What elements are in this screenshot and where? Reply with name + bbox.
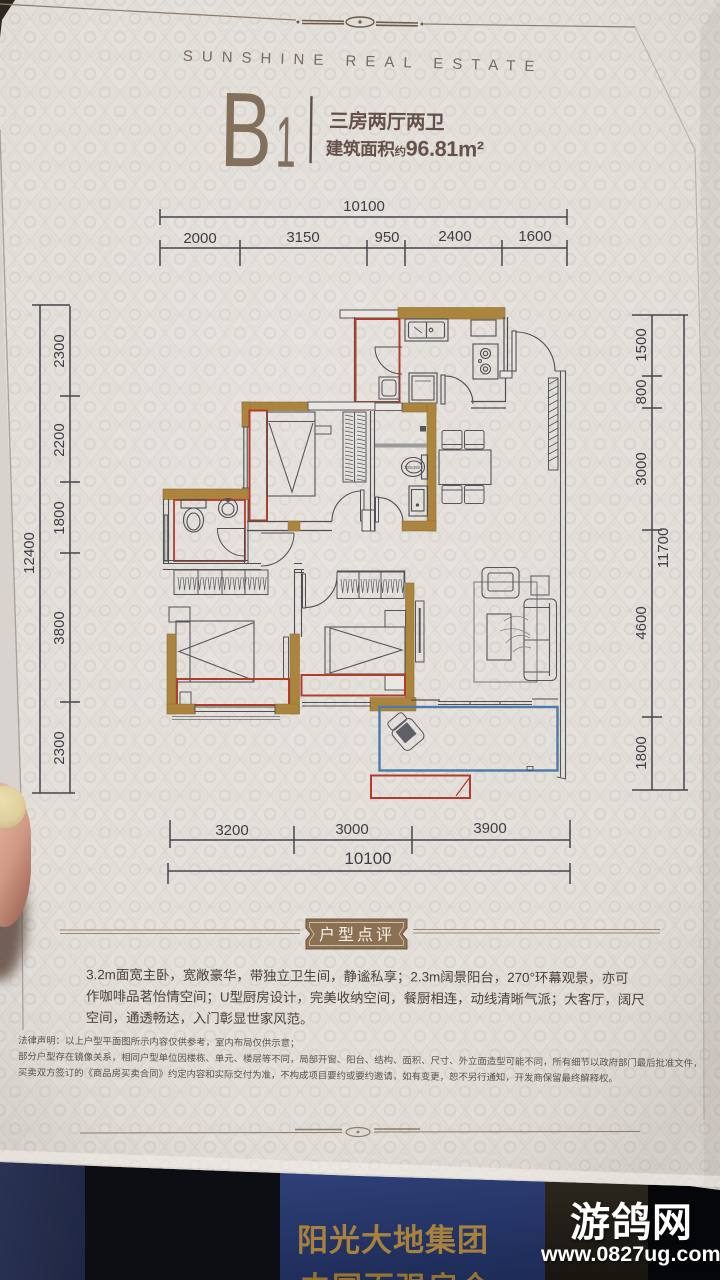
svg-text:3000: 3000 <box>633 452 650 485</box>
svg-text:3800: 3800 <box>51 611 68 644</box>
svg-text:10100: 10100 <box>344 849 391 868</box>
svg-text:1: 1 <box>275 103 296 183</box>
svg-text:1500: 1500 <box>633 328 650 361</box>
svg-text:12400: 12400 <box>21 532 38 574</box>
svg-text:11700: 11700 <box>655 528 672 569</box>
svg-text:4600: 4600 <box>633 606 650 639</box>
svg-text:户型点评: 户型点评 <box>319 926 395 944</box>
svg-text:950: 950 <box>374 229 399 246</box>
svg-text:3000: 3000 <box>335 821 368 838</box>
svg-text:10100: 10100 <box>343 198 385 215</box>
svg-text:3150: 3150 <box>286 229 319 246</box>
svg-text:2200: 2200 <box>51 423 68 456</box>
svg-text:1600: 1600 <box>518 228 551 245</box>
svg-text:空间，通透畅达，入门彰显世家风范。: 空间，通透畅达，入门彰显世家风范。 <box>86 1009 314 1027</box>
svg-text:2300: 2300 <box>51 731 68 764</box>
svg-text:三房两厅两卫: 三房两厅两卫 <box>329 109 445 134</box>
svg-text:3200: 3200 <box>215 822 248 839</box>
svg-text:700x350: 700x350 <box>404 465 421 470</box>
svg-text:3900: 3900 <box>473 820 506 837</box>
svg-text:1800: 1800 <box>633 736 650 769</box>
svg-text:2300: 2300 <box>51 334 68 367</box>
svg-text:2400: 2400 <box>438 228 471 245</box>
svg-text:1800: 1800 <box>51 501 68 534</box>
svg-text:800: 800 <box>633 379 650 404</box>
svg-text:2000: 2000 <box>183 230 216 247</box>
svg-text:B: B <box>219 71 273 190</box>
